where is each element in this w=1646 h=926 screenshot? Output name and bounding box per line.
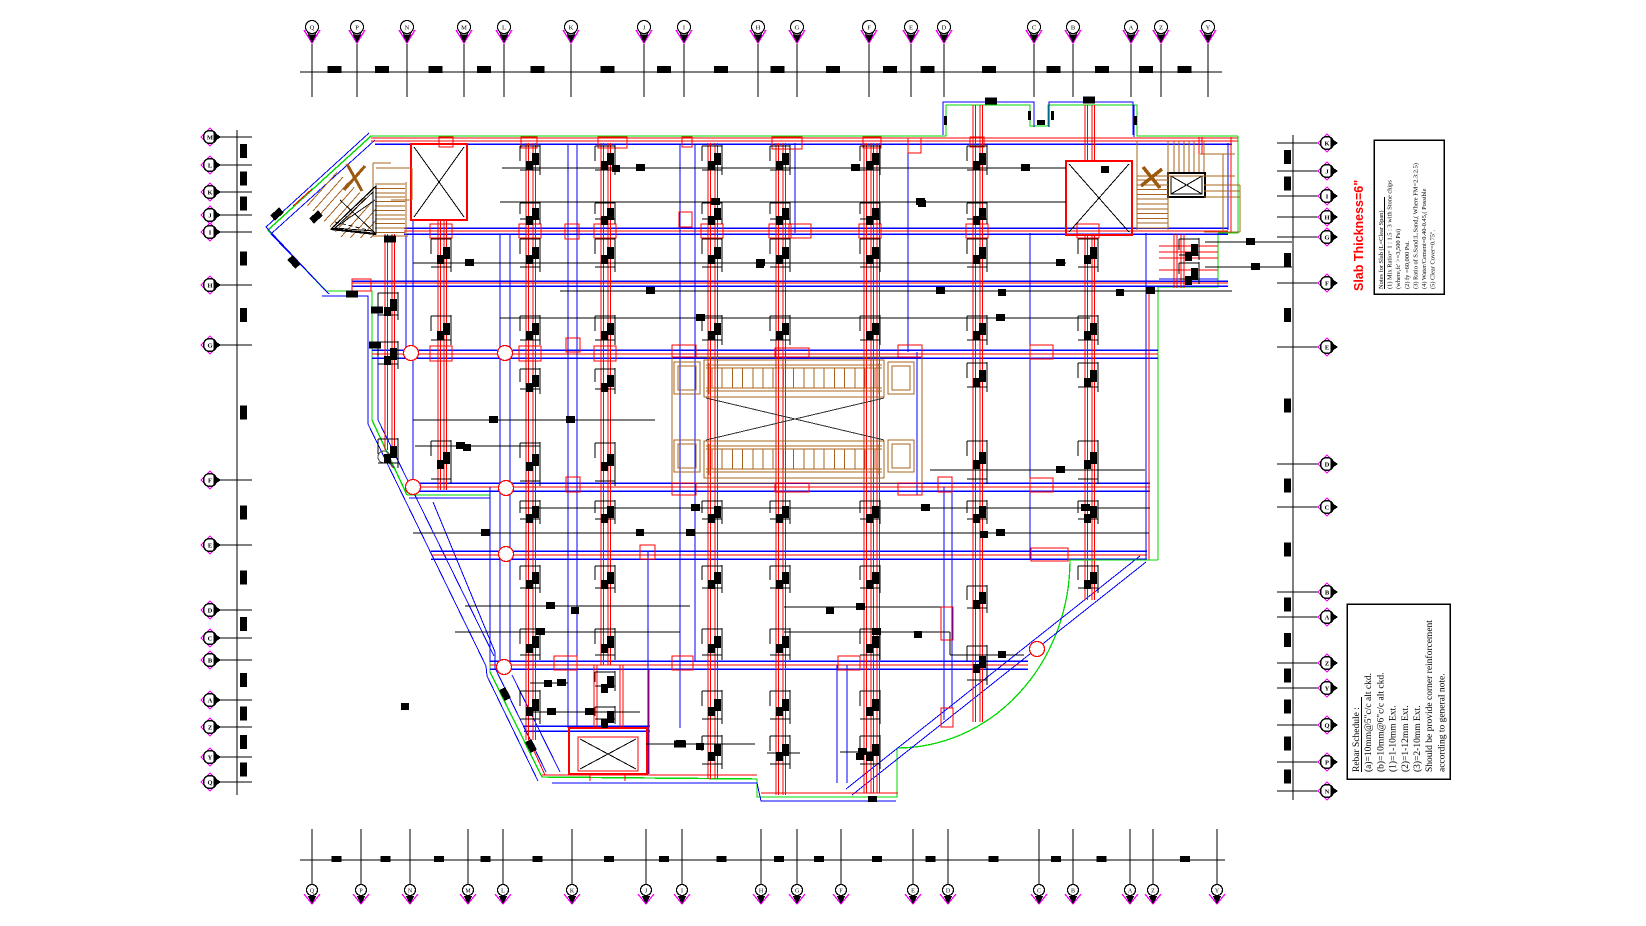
svg-text:Q: Q	[310, 889, 315, 895]
svg-text:D: D	[942, 25, 947, 32]
svg-text:N: N	[405, 25, 410, 32]
svg-text:C: C	[208, 636, 213, 643]
svg-text:(b)=10mm@6"c/c alt ckd.: (b)=10mm@6"c/c alt ckd.	[1375, 673, 1386, 773]
svg-text:Slab Thickness=6": Slab Thickness=6"	[1352, 180, 1366, 291]
svg-text:A: A	[1129, 25, 1134, 32]
svg-text:C: C	[1037, 889, 1041, 895]
svg-text:(2)=1-12mm Ext.: (2)=1-12mm Ext.	[1400, 705, 1411, 772]
svg-text:(3) Ratio of S.Sand:L.Sand,( W: (3) Ratio of S.Sand:L.Sand,( Where FM=2.…	[1412, 163, 1419, 289]
svg-text:P: P	[355, 25, 359, 32]
svg-text:Y: Y	[1325, 686, 1330, 693]
svg-text:N: N	[408, 889, 413, 895]
svg-text:P: P	[1325, 760, 1329, 767]
svg-text:H: H	[759, 889, 764, 895]
svg-text:D: D	[946, 889, 951, 895]
svg-text:H: H	[207, 283, 212, 290]
svg-text:(where,fc' >=3,500 Psi): (where,fc' >=3,500 Psi)	[1395, 229, 1402, 289]
svg-text:(1)=1-10mm Ext.: (1)=1-10mm Ext.	[1388, 705, 1399, 772]
svg-text:(5) Clear Cover=0.75".: (5) Clear Cover=0.75".	[1430, 229, 1437, 289]
svg-text:A: A	[1325, 615, 1330, 622]
svg-text:L: L	[502, 25, 506, 32]
svg-text:G: G	[1324, 235, 1329, 242]
svg-text:B: B	[1325, 590, 1330, 597]
svg-text:C: C	[1325, 505, 1330, 512]
svg-text:L: L	[501, 889, 505, 895]
svg-text:K: K	[1324, 141, 1329, 148]
svg-text:Z: Z	[1159, 25, 1163, 32]
svg-text:B: B	[1071, 25, 1076, 32]
svg-text:G: G	[207, 343, 212, 350]
svg-text:(1) Mix Ratio= 1 : 1.5 : 3 wit: (1) Mix Ratio= 1 : 1.5 : 3 with Stone ch…	[1387, 180, 1394, 289]
svg-text:Z: Z	[1325, 661, 1329, 668]
svg-text:Q: Q	[310, 25, 315, 32]
svg-text:B: B	[1071, 889, 1075, 895]
svg-text:K: K	[570, 889, 575, 895]
svg-text:(4) Water/Cement=0.40-0.45,( P: (4) Water/Cement=0.40-0.45,( Possible	[1421, 188, 1428, 289]
svg-text:(2) fy =60,000 Psi.: (2) fy =60,000 Psi.	[1404, 240, 1411, 289]
svg-text:D: D	[1325, 462, 1330, 469]
svg-text:C: C	[1032, 25, 1036, 32]
svg-text:G: G	[795, 25, 800, 32]
svg-text:G: G	[795, 889, 800, 895]
svg-text:Y: Y	[208, 755, 213, 762]
svg-text:L: L	[208, 163, 213, 170]
svg-text:E: E	[1325, 345, 1329, 352]
svg-text:Z: Z	[1151, 889, 1155, 895]
svg-text:N: N	[1325, 789, 1330, 796]
svg-text:M: M	[461, 25, 467, 32]
svg-text:according to general note.: according to general note.	[1437, 673, 1447, 772]
svg-text:Should be provide corner reinf: Should be provide corner reinforcement	[1424, 620, 1435, 772]
svg-text:Q: Q	[207, 780, 212, 787]
svg-text:(a)=10mm@5"c/c alt ckd.: (a)=10mm@5"c/c alt ckd.	[1363, 673, 1374, 772]
svg-text:F: F	[208, 478, 212, 485]
svg-text:H: H	[1324, 215, 1329, 222]
svg-text:Rebar Schedule :: Rebar Schedule :	[1352, 707, 1362, 772]
svg-text:E: E	[911, 889, 915, 895]
svg-text:F: F	[867, 25, 871, 32]
svg-text:H: H	[756, 25, 761, 32]
svg-text:F: F	[1325, 281, 1329, 288]
svg-text:A: A	[208, 698, 213, 705]
svg-text:Q: Q	[1324, 723, 1329, 730]
svg-text:I: I	[681, 889, 683, 895]
svg-text:A: A	[1128, 889, 1133, 895]
svg-text:B: B	[208, 658, 213, 665]
svg-text:K: K	[569, 25, 574, 32]
svg-text:M: M	[207, 135, 213, 142]
svg-text:D: D	[208, 608, 213, 615]
svg-text:Notes for Slab (L=Clear Span): Notes for Slab (L=Clear Span)	[1378, 211, 1385, 290]
svg-text:E: E	[909, 25, 913, 32]
svg-text:Z: Z	[208, 725, 212, 732]
svg-text:Y: Y	[1206, 25, 1211, 32]
svg-text:Y: Y	[1215, 889, 1220, 895]
svg-text:I: I	[683, 25, 685, 32]
svg-text:E: E	[208, 543, 212, 550]
svg-text:M: M	[465, 889, 471, 895]
svg-text:(3)=2-10mm Ext.: (3)=2-10mm Ext.	[1412, 705, 1423, 772]
svg-text:K: K	[207, 190, 212, 197]
